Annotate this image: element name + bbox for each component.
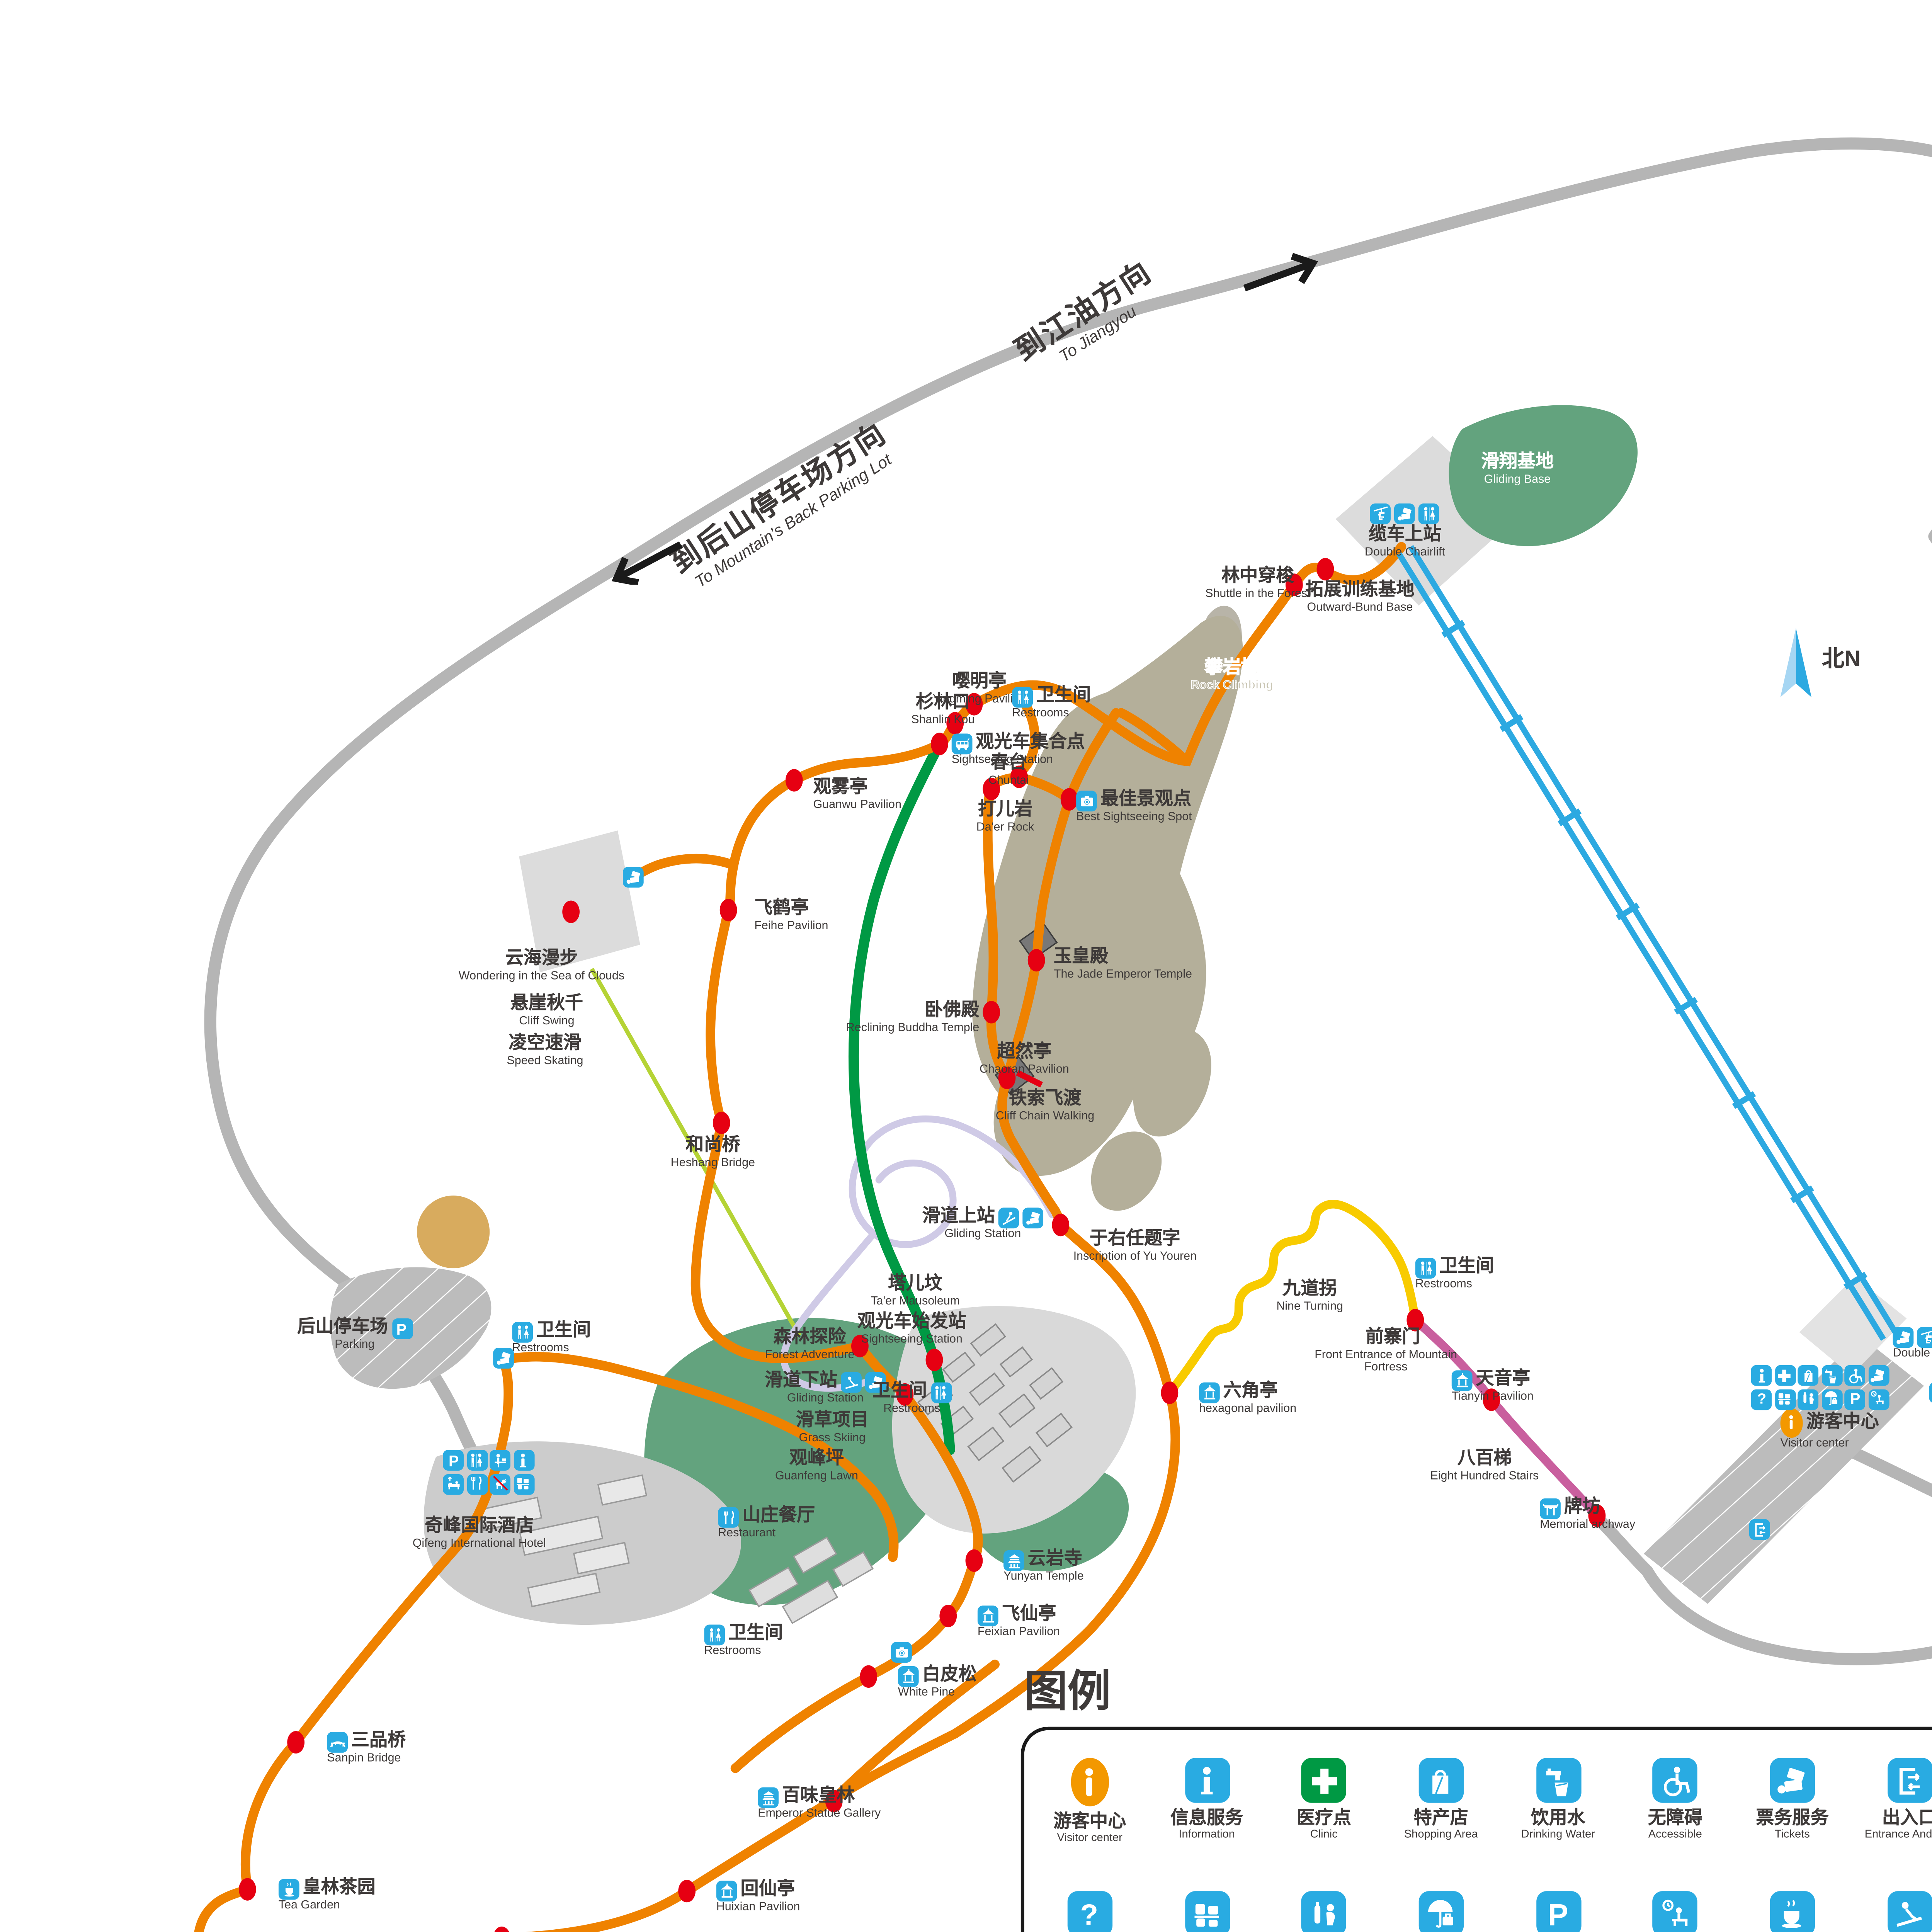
legend-item-information: 信息服务Information [1148,1759,1265,1855]
poi-white-pine: 白皮松White Pine [898,1666,977,1700]
poi-restrooms: 卫生间Restrooms [1415,1258,1494,1292]
legend-label-en: Information [1179,1830,1235,1842]
poi-label-cn: 百味皇林 [782,1787,855,1808]
poi-label-en: Heshang Bridge [671,1157,755,1170]
poi-label-en: Gliding Base [1481,474,1554,487]
poi-chuntai: 春台Chuntai [988,754,1029,788]
poi-label-en: Best Sightseeing Spot [1076,811,1192,825]
poi-forest-adventure: 森林探险Forest Adventure [765,1329,855,1362]
poi-label-en: Forest Adventure [765,1349,855,1362]
poi-chaoran-pavilion: 超然亭Chaoran Pavilion [980,1043,1069,1077]
poi-cliff-chain-walking: 铁索飞渡Cliff Chain Walking [996,1090,1094,1124]
sight-spot-dot [1028,949,1045,971]
ticket-icon [1770,1759,1815,1803]
poi-label-en: Double Chairlift [1893,1348,1932,1361]
q-icon [1751,1388,1772,1409]
wc-icon [1929,1383,1932,1403]
legend-label-cn: 出入口 [1882,1809,1932,1830]
legend-label-cn: 游客中心 [1053,1812,1126,1833]
poi-memorial-archway: 牌坊Memorial archway [1540,1498,1635,1532]
lost-icon [1821,1388,1842,1409]
poi-label-cn: 奇峰国际酒店 [425,1517,534,1538]
food-icon [718,1507,739,1528]
sight-spot-dot [939,1605,957,1627]
sight-spot-dot [926,1349,943,1371]
poi-label-en: The Jade Emperor Temple [1054,968,1192,981]
info-icon [1184,1759,1229,1803]
poi-feixian-pavilion: 飞仙亭Feixian Pavilion [978,1605,1060,1639]
poi-grass-skiing: 滑草项目Grass Skiing [796,1412,869,1446]
poi-sanpin-bridge: 三品桥Sanpin Bridge [327,1732,406,1766]
map-artwork [0,0,1932,1932]
legend-title: 图例 [1024,1658,1111,1720]
poi-label-en: Rock Climbing [1191,680,1273,693]
poi-label-cn: 卫生间 [536,1322,591,1343]
baby-icon [1798,1388,1818,1409]
poi-label-cn: 观光车集合点 [976,734,1085,754]
P-icon [391,1318,412,1339]
hotel-services [443,1450,534,1494]
poi-label-cn: 观峰坪 [789,1450,844,1470]
poi-gliding-station: 滑道上站Gliding Station [922,1207,1043,1242]
temple-icon [758,1787,779,1808]
wait-icon [1868,1388,1889,1409]
ticket-icon [1022,1207,1043,1228]
legend-label-cn: 医疗点 [1297,1809,1351,1830]
legend-label-cn: 特产店 [1414,1809,1468,1830]
tea-icon [1770,1891,1815,1932]
legend-label-cn: 无障碍 [1648,1809,1702,1830]
poi-label-cn: 滑道下站 [765,1372,837,1393]
poi-label-en: Feixian Pavilion [978,1626,1060,1639]
poi-label-en: Shanlin Kou [911,714,975,727]
poi-label-cn: 卫生间 [728,1625,783,1645]
poi-label-en: Chuntai [988,775,1029,788]
recep-icon [490,1450,510,1471]
poi-label-en: Restrooms [1415,1279,1494,1292]
lift-icon [1917,1327,1932,1348]
poi-label-en: Shuttle in the Forest [1205,588,1310,601]
poi-label-en: Restrooms [872,1403,951,1416]
bridge-icon [327,1732,348,1753]
P-icon [1844,1388,1865,1409]
legend-label-cn: 信息服务 [1170,1809,1243,1830]
sight-spot-dot [931,733,948,755]
poi-label-en: Double Chairlift [1365,546,1445,560]
info-icon [1751,1365,1772,1386]
poi-label-cn: 滑翔基地 [1481,453,1554,474]
legend-item-waiting-area: 等候区Waiting Area [1617,1891,1734,1932]
poi-label-en: Sightseeing Station [857,1333,966,1347]
water-icon [1821,1365,1842,1386]
legend-item-visitor-center: 游客中心Visitor center [1031,1759,1148,1855]
poi-label-cn: 云海漫步 [505,950,578,970]
poi-label-cn: 三品桥 [351,1732,406,1753]
poi-label-en: Eight Hundred Stairs [1430,1470,1539,1483]
poi-label-en: Restrooms [512,1343,591,1356]
bed-icon [443,1473,464,1494]
poi-gliding-base: 滑翔基地Gliding Base [1481,453,1554,487]
scenic-area-map: ? P [0,0,1932,1932]
poi-label-cn: 观雾亭 [813,779,868,799]
poi-restrooms: 卫生间Restrooms [1012,687,1091,721]
poi-label-cn: 卫生间 [872,1383,927,1403]
legend-item-gliding-station: 滑道下站Gliding Station [1851,1891,1932,1932]
clinic-icon [1301,1759,1346,1803]
sight-spot-dot [860,1665,877,1688]
poi-label-en: Reclining Buddha Temple [846,1022,980,1035]
poi-label-cn: 云岩寺 [1028,1551,1082,1571]
baby-icon [1301,1891,1346,1932]
poi-sightseeing-station: 观光车始发站Sightseeing Station [857,1313,966,1347]
poi-label-cn: 回仙亭 [740,1881,795,1901]
legend-item-entrance-and-exit: 出入口Entrance And Exit [1851,1759,1932,1855]
poi-label-cn: 后山停车场 [297,1319,388,1339]
sight-spot-dot [1161,1381,1179,1404]
P-icon [443,1450,464,1471]
water-icon [1536,1759,1580,1803]
poi-heshang-bridge: 和尚桥Heshang Bridge [671,1137,755,1170]
poi-eight-hundred-stairs: 八百梯Eight Hundred Stairs [1430,1450,1539,1483]
sight-spot-dot [1061,788,1078,811]
poi-label-cn: 卫生间 [1036,687,1091,707]
ticket-icon [623,867,644,888]
glidedn-icon [841,1372,862,1393]
poi-label-en: Ta'er Mausoleum [871,1296,960,1309]
poi-restrooms: 卫生间Restrooms [512,1322,591,1356]
poi-label-cn: 前寨门 [1366,1329,1420,1349]
poi-label-en: Restrooms [1012,707,1091,721]
sight-spot-dot [287,1731,304,1753]
poi-outward-bund-base: 拓展训练基地Outward-Bund Base [1305,582,1414,615]
north-indicator: 北N [1775,626,1861,699]
legend-label-en: Entrance And Exit [1865,1830,1932,1842]
poi-tea-garden: 皇林茶园Tea Garden [279,1879,376,1913]
poi-label-en: Da'er Rock [976,821,1034,835]
poi-double-chairlift: 缆车上站Double Chairlift [1365,503,1445,560]
wc-icon [1012,687,1033,708]
sight-spot-dot [1052,1214,1069,1236]
poi-label-cn: 游客中心 [1806,1413,1879,1434]
poi-reclining-buddha-temple: 卧佛殿Reclining Buddha Temple [846,1002,980,1036]
legend-row-1: 游客中心Visitor center信息服务Information医疗点Clin… [1031,1759,1932,1855]
poi-shuttle-in-the-forest: 林中穿梭Shuttle in the Forest [1205,568,1310,601]
ticket-icon [493,1348,514,1369]
poi-label-en: hexagonal pavilion [1199,1403,1296,1416]
clinic-icon [1774,1365,1795,1386]
wc-icon [1415,1258,1436,1279]
poi-label-cn: 铁索飞渡 [1009,1090,1081,1111]
poi-label-en: Gliding Station [765,1393,886,1406]
pav-icon [898,1666,919,1687]
sight-spot-dot [1317,558,1334,580]
legend-item-shopping-area: 特产店Shopping Area [1383,1759,1500,1855]
north-arrow-icon [1775,626,1816,699]
poi-label-en: Visitor center [1781,1438,1879,1451]
poi-inscription-of-yu-youren: 于右任题字Inscription of Yu Youren [1073,1230,1197,1264]
sight-spot-dot [983,1001,1000,1023]
poi-label-en: Memorial archway [1540,1519,1635,1532]
poi-label-cn: 杉林口 [916,694,970,714]
lugg-icon [1184,1891,1229,1932]
poi-label-en: Qifeng International Hotel [413,1538,546,1551]
poi-label-en: Sanpin Bridge [327,1753,406,1766]
poi-label-en: Restaurant [718,1528,815,1541]
poi-label-en: Cliff Chain Walking [996,1111,1094,1124]
poi-emperor-statue-gallery: 百味皇林Emperor Statue Gallery [758,1787,881,1821]
P-icon [1536,1891,1580,1932]
pav-icon [1452,1370,1473,1391]
poi-label-en: Wondering in the Sea of Clouds [459,970,624,983]
food-icon [466,1473,487,1494]
poi-label-en: Outward-Bund Base [1305,602,1414,615]
poi-da-er-rock: 打儿岩Da'er Rock [976,801,1034,835]
poi-label-cn: 牌坊 [1564,1498,1600,1519]
nopets-icon [490,1473,510,1494]
poi-label-cn: 白皮松 [922,1667,977,1687]
legend-item-parking: 停车场Parking [1500,1891,1617,1932]
poi-label-cn: 森林探险 [773,1329,846,1349]
pav-icon [978,1605,998,1626]
poi-label-en: Guanwu Pavilion [813,799,901,812]
pav-icon [1199,1383,1220,1403]
poi-label-cn: 于右任题字 [1090,1230,1180,1251]
poi-guanfeng-lawn: 观峰坪Guanfeng Lawn [775,1450,858,1483]
poi-feihe-pavilion: 飞鹤亭Feihe Pavilion [754,900,828,933]
legend-label-cn: 饮用水 [1531,1809,1585,1830]
legend-item-tea: 皇林茶园Tea [1734,1891,1851,1932]
poi-label-cn: 和尚桥 [685,1137,740,1157]
legend-label-cn: 票务服务 [1756,1809,1828,1830]
poi-ta-er-mausoleum: 塔儿坟Ta'er Mausoleum [871,1275,960,1309]
bag-icon [1418,1759,1463,1803]
sight-spot-dot [239,1878,256,1901]
poi-label-cn: 山庄餐厅 [742,1507,815,1528]
wheel-icon [1844,1365,1865,1386]
sight-spot-dot [966,1549,983,1572]
poi-label-cn: 悬崖秋千 [510,995,583,1015]
west-parking-knoll [417,1196,490,1268]
poi-wondering-in-the-sea-of-clouds: 云海漫步Wondering in the Sea of Clouds [459,950,624,983]
poi-label-en: Inscription of Yu Youren [1073,1250,1197,1264]
q-icon [1067,1891,1112,1932]
poi-guanwu-pavilion: 观雾亭Guanwu Pavilion [813,779,901,812]
legend-item-accessible: 无障碍Accessible [1617,1759,1734,1855]
poi-label-en: White Pine [898,1687,977,1700]
legend-item-left-luggage: 行李寄存Left Luggage [1148,1891,1265,1932]
poi-front-entrance-of-mountain-fortress: 前寨门Front Entrance of Mountain Fortress [1317,1329,1469,1376]
poi-label-cn: 最佳景观点 [1100,791,1191,811]
poi-label-cn: 滑道上站 [922,1208,995,1228]
poi-label-en: Huixian Pavilion [716,1901,800,1915]
glideup-icon [998,1207,1019,1228]
poi-label-cn: 玉皇殿 [1054,948,1108,969]
poi-label-cn: 卫生间 [1439,1258,1494,1279]
wc-icon [466,1450,487,1471]
poi-label-en: Tianyin Pavilion [1452,1391,1534,1404]
pav-icon [716,1881,737,1901]
tea-icon [279,1879,299,1900]
poi-parking: 后山停车场Parking [297,1318,412,1352]
exit-icon [1749,1519,1770,1540]
poi-label-cn: 六角亭 [1223,1383,1278,1403]
poi-speed-skating: 凌空速滑Speed Skating [507,1035,583,1068]
wc-icon [704,1625,725,1646]
poi-the-jade-emperor-temple: 玉皇殿The Jade Emperor Temple [1054,948,1192,982]
legend-label-en: Tickets [1775,1830,1810,1842]
glidedn-icon [1887,1891,1932,1932]
lost-icon [1418,1891,1463,1932]
poi-label-cn: 嘤明亭 [952,673,1007,694]
poi-qifeng-international-hotel: 奇峰国际酒店Qifeng International Hotel [413,1517,546,1551]
poi-visitor-center: 游客中心Visitor center [1781,1408,1879,1451]
sight-spot-dot [678,1880,696,1902]
legend-label-en: Accessible [1648,1830,1702,1842]
map-viewport: ? P [0,0,1932,1932]
arch-icon [1540,1498,1561,1519]
wheel-icon [1653,1759,1697,1803]
legend-box: 游客中心Visitor center信息服务Information医疗点Clin… [1021,1727,1932,1932]
poi-label-cn: 凌空速滑 [509,1035,581,1055]
poi-label-cn: 八百梯 [1457,1450,1512,1470]
sight-spot-dot [720,899,737,921]
poi-label-cn: 飞鹤亭 [754,900,809,920]
poi-label-en: Tea Garden [279,1900,376,1913]
legend-item-clinic: 医疗点Clinic [1265,1759,1383,1855]
lugg-icon [1774,1388,1795,1409]
poi-label-cn: 天音亭 [1476,1371,1530,1391]
legend-item-lost-and-found: 失物招领Lost And Found [1383,1891,1500,1932]
vc-icon [1781,1408,1803,1438]
poi-rock-climbing: 攀岩场Rock Climbing [1191,659,1273,693]
poi-label-cn: 林中穿梭 [1221,568,1294,588]
back-parking-arrow-icon [602,540,692,585]
exit-icon [1887,1759,1932,1803]
lift-icon [1370,503,1391,524]
legend-row-2: 咨询台Enquiry行李寄存Left Luggage哺乳处Baby Care失物… [1031,1891,1932,1932]
poi-label-en: Cliff Swing [510,1015,583,1028]
lugg-icon [513,1473,534,1494]
legend-label-en: Clinic [1310,1830,1338,1842]
sight-spot-dot [786,769,803,791]
legend-label-en: Shopping Area [1404,1830,1478,1842]
poi-label-en: Emperor Statue Gallery [758,1808,881,1821]
poi-label-en: Front Entrance of Mountain Fortress [1303,1349,1469,1375]
poi-label-en: Gliding Station [922,1228,1043,1242]
poi-label-en: Speed Skating [507,1055,583,1068]
poi-huixian-pavilion: 回仙亭Huixian Pavilion [716,1881,800,1915]
wc-icon [1419,503,1440,524]
poi-label-en: Grass Skiing [796,1432,869,1445]
wc-icon [930,1383,951,1403]
poi-yunyan-temple: 云岩寺Yunyan Temple [1003,1550,1084,1584]
legend-item-enquiry: 咨询台Enquiry [1031,1891,1148,1932]
poi-nine-turning: 九道拐Nine Turning [1276,1280,1343,1314]
poi-label-en: Parking [297,1339,412,1352]
poi-label-cn: 九道拐 [1282,1280,1337,1301]
legend-item-drinking-water: 饮用水Drinking Water [1500,1759,1617,1855]
wc-icon [512,1322,533,1343]
info-icon [513,1450,534,1471]
poi-hexagonal-pavilion: 六角亭hexagonal pavilion [1199,1383,1296,1417]
poi-best-sightseeing-spot: 最佳景观点Best Sightseeing Spot [1076,791,1192,825]
sight-spot-dot [562,901,580,923]
poi-label-en: Chaoran Pavilion [980,1064,1069,1077]
poi-shanlin-kou: 杉林口Shanlin Kou [911,694,975,728]
bus-icon [952,734,973,755]
poi-label-cn: 观光车始发站 [857,1313,966,1334]
north-label: 北N [1822,640,1861,673]
cam-icon [891,1642,912,1663]
poi-label-en: Nine Turning [1276,1301,1343,1314]
walking-path-layer [198,547,1401,1932]
ticket-icon [1395,503,1415,524]
poi-double-chairlift: 缆车下站Double Chairlift [1893,1327,1932,1361]
poi-restaurant: 山庄餐厅Restaurant [718,1507,815,1541]
legend-label-en: Visitor center [1057,1833,1122,1846]
poi-restrooms: 卫生间Restrooms [872,1383,951,1417]
bag-icon [1798,1365,1818,1386]
visitor-center-services [1751,1365,1888,1409]
poi-label-cn: 打儿岩 [978,801,1032,821]
poi-label-cn: 超然亭 [997,1043,1051,1064]
poi-tianyin-pavilion: 天音亭Tianyin Pavilion [1452,1370,1534,1404]
poi-restrooms: 卫生间Restrooms [704,1625,783,1659]
poi-label-en: Feihe Pavilion [754,920,828,933]
poi-cliff-swing: 悬崖秋千Cliff Swing [510,995,583,1029]
legend-item-tickets: 票务服务Tickets [1734,1759,1851,1855]
legend-item-baby-care: 哺乳处Baby Care [1265,1891,1383,1932]
poi-label-en: Yunyan Temple [1003,1571,1084,1584]
ticket-icon [1868,1365,1889,1386]
vc-icon [1071,1759,1109,1807]
poi-label-cn: 皇林茶园 [303,1879,376,1900]
poi-label-en: Guanfeng Lawn [775,1470,858,1483]
poi-gliding-station: 滑道下站Gliding Station [765,1372,886,1406]
poi-label-en: Restrooms [704,1645,783,1658]
poi-label-cn: 缆车上站 [1369,526,1441,546]
temple-icon [1003,1550,1024,1571]
jiangyou-arrow-icon [1235,253,1325,298]
legend-label-en: Drinking Water [1521,1830,1595,1842]
poi-label-cn: 春台 [990,754,1027,775]
poi-label-cn: 飞仙亭 [1002,1606,1056,1626]
poi-label-cn: 拓展训练基地 [1305,582,1414,602]
ticket-icon [1893,1327,1914,1348]
poi-label-cn: 卧佛殿 [925,1002,979,1022]
poi-label-cn: 塔儿坟 [888,1275,942,1296]
cam-icon [1076,791,1097,811]
poi-label-cn: 攀岩场 [1205,659,1259,680]
poi-label-cn: 滑草项目 [796,1412,869,1432]
wait-icon [1653,1891,1697,1932]
sight-spot-dot [713,1112,730,1134]
